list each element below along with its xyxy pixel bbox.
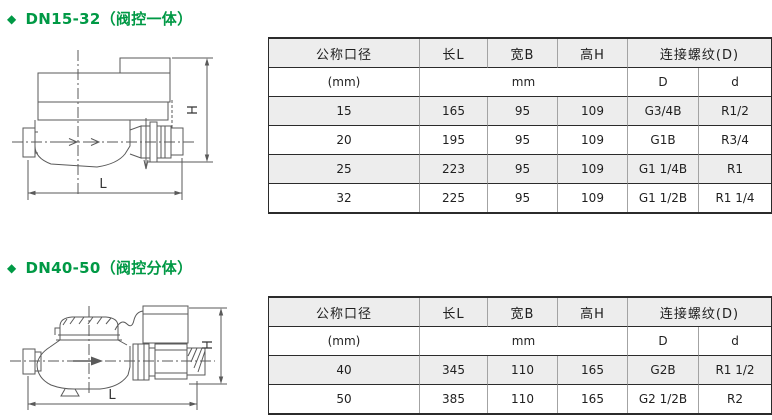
unit-thread-d: d [699, 327, 771, 356]
spec-table-dn40-50: 公称口径 长L 宽B 高H 连接螺纹(D) (mm) mm D d 40 345… [268, 296, 772, 415]
col-header-length: 长L [420, 39, 488, 68]
unit-mm: mm [420, 327, 628, 356]
cell-thread-d: R1/2 [699, 97, 771, 126]
table-unit-row: (mm) mm D d [269, 327, 771, 356]
table-unit-row: (mm) mm D d [269, 68, 771, 97]
col-header-width: 宽B [488, 298, 558, 327]
cell-dn: 50 [269, 385, 420, 413]
cell-dn: 15 [269, 97, 420, 126]
cell-thread-d: R1 1/4 [699, 184, 771, 212]
actuator-cable [115, 311, 143, 330]
cell-length: 165 [420, 97, 488, 126]
register-housing [38, 58, 170, 120]
table-row: 50 385 110 165 G2 1/2B R2 [269, 385, 771, 413]
dim-label-l: L [108, 388, 116, 403]
col-header-thread: 连接螺纹(D) [628, 298, 771, 327]
center-lines [12, 50, 195, 195]
unit-thread-D: D [628, 68, 699, 97]
cell-dn: 40 [269, 356, 420, 385]
cell-width: 95 [488, 126, 558, 155]
dim-label-l: L [99, 177, 107, 192]
center-lines [10, 306, 215, 396]
unit-mm: mm [420, 68, 628, 97]
cell-thread-d: R1 [699, 155, 771, 184]
diamond-bullet-icon: ◆ [7, 13, 17, 25]
unit-bore: (mm) [269, 327, 420, 356]
cell-dn: 25 [269, 155, 420, 184]
unit-bore: (mm) [269, 68, 420, 97]
cell-length: 225 [420, 184, 488, 212]
meter-diagram-valve-separate: H L [5, 292, 260, 417]
table-row: 20 195 95 109 G1B R3/4 [269, 126, 771, 155]
col-header-length: 长L [420, 298, 488, 327]
cell-thread-D: G3/4B [628, 97, 699, 126]
cell-dn: 32 [269, 184, 420, 212]
cell-width: 110 [488, 356, 558, 385]
section-title-text: DN15-32（阀控一体） [26, 8, 193, 29]
meter-diagram-valve-integrated: H L [5, 42, 260, 207]
col-header-width: 宽B [488, 39, 558, 68]
cell-thread-d: R3/4 [699, 126, 771, 155]
table-row: 32 225 95 109 G1 1/2B R1 1/4 [269, 184, 771, 212]
diamond-bullet-icon: ◆ [7, 262, 17, 274]
h-dimension [148, 58, 213, 162]
cell-length: 345 [420, 356, 488, 385]
cell-thread-D: G2B [628, 356, 699, 385]
cell-height: 165 [558, 356, 628, 385]
col-header-bore: 公称口径 [269, 39, 420, 68]
cell-width: 95 [488, 184, 558, 212]
section-title-text: DN40-50（阀控分体） [26, 257, 193, 278]
cell-thread-d: R1 1/2 [699, 356, 771, 385]
cell-thread-D: G2 1/2B [628, 385, 699, 413]
cell-thread-D: G1 1/4B [628, 155, 699, 184]
flow-direction-arrow [73, 357, 103, 366]
cell-height: 165 [558, 385, 628, 413]
col-header-height: 高H [558, 39, 628, 68]
table-row: 40 345 110 165 G2B R1 1/2 [269, 356, 771, 385]
col-header-height: 高H [558, 298, 628, 327]
cell-width: 110 [488, 385, 558, 413]
cell-thread-D: G1B [628, 126, 699, 155]
unit-thread-D: D [628, 327, 699, 356]
datasheet-page: ◆ DN15-32（阀控一体） [0, 0, 772, 420]
cell-length: 223 [420, 155, 488, 184]
dim-label-h: H [186, 105, 201, 115]
table-header-row: 公称口径 长L 宽B 高H 连接螺纹(D) [269, 298, 771, 327]
col-header-bore: 公称口径 [269, 298, 420, 327]
valve-assembly [130, 100, 183, 169]
dim-label-h: H [201, 340, 216, 350]
cell-width: 95 [488, 97, 558, 126]
cell-height: 109 [558, 126, 628, 155]
actuator-box [143, 306, 188, 344]
cell-width: 95 [488, 155, 558, 184]
cell-length: 385 [420, 385, 488, 413]
table-header-row: 公称口径 长L 宽B 高H 连接螺纹(D) [269, 39, 771, 68]
cell-thread-d: R2 [699, 385, 771, 413]
cell-length: 195 [420, 126, 488, 155]
valve-assembly [133, 344, 205, 380]
cell-dn: 20 [269, 126, 420, 155]
cell-height: 109 [558, 155, 628, 184]
unit-thread-d: d [699, 68, 771, 97]
cell-thread-D: G1 1/2B [628, 184, 699, 212]
spec-table-dn15-32: 公称口径 长L 宽B 高H 连接螺纹(D) (mm) mm D d 15 165… [268, 37, 772, 214]
table-row: 15 165 95 109 G3/4B R1/2 [269, 97, 771, 126]
table-row: 25 223 95 109 G1 1/4B R1 [269, 155, 771, 184]
cell-height: 109 [558, 97, 628, 126]
meter-body [23, 120, 130, 167]
cell-height: 109 [558, 184, 628, 212]
section-title-dn15-32: ◆ DN15-32（阀控一体） [7, 8, 192, 29]
section-title-dn40-50: ◆ DN40-50（阀控分体） [7, 257, 192, 278]
col-header-thread: 连接螺纹(D) [628, 39, 771, 68]
